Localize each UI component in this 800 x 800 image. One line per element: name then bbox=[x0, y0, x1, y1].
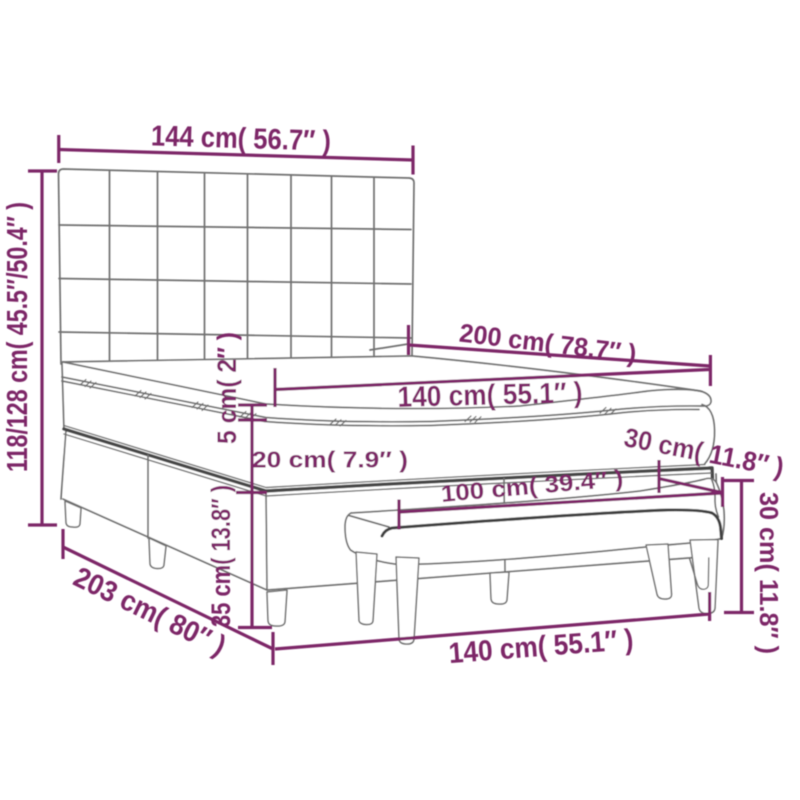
svg-text:5 cm( 2″ ): 5 cm( 2″ ) bbox=[212, 332, 242, 444]
svg-text:35 cm( 13.8″ ): 35 cm( 13.8″ ) bbox=[206, 485, 236, 627]
svg-text:118/128 cm( 45.5″/50.4″ ): 118/128 cm( 45.5″/50.4″ ) bbox=[2, 202, 34, 472]
svg-text:30 cm( 11.8″ ): 30 cm( 11.8″ ) bbox=[754, 492, 784, 654]
svg-text:20 cm( 7.9″ ): 20 cm( 7.9″ ) bbox=[252, 447, 408, 473]
svg-text:144 cm( 56.7″ ): 144 cm( 56.7″ ) bbox=[151, 120, 332, 157]
svg-text:140 cm( 55.1″ ): 140 cm( 55.1″ ) bbox=[397, 377, 583, 414]
